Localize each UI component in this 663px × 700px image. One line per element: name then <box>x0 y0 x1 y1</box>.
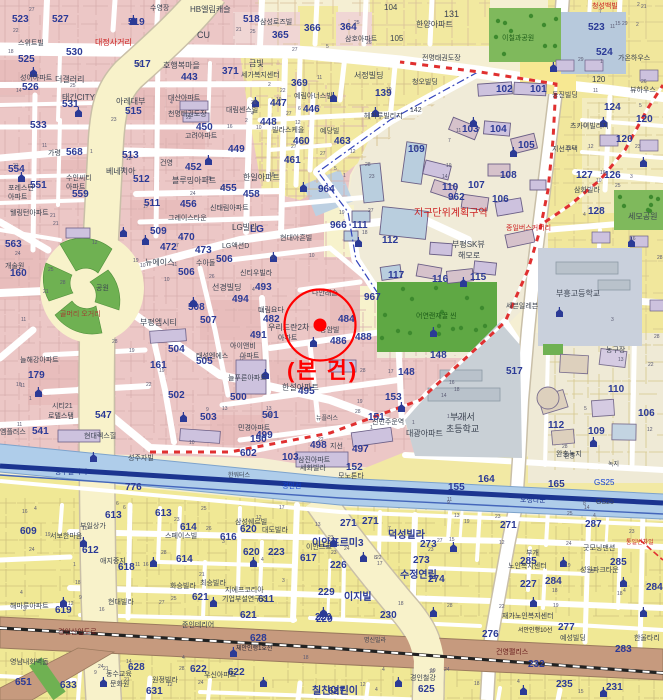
svg-text:4: 4 <box>517 679 520 685</box>
svg-text:25: 25 <box>201 506 207 512</box>
svg-text:4: 4 <box>182 655 185 661</box>
svg-text:541: 541 <box>32 426 49 437</box>
svg-text:3: 3 <box>611 317 614 323</box>
svg-text:509: 509 <box>150 226 167 237</box>
svg-text:건영: 건영 <box>160 158 173 167</box>
svg-text:23: 23 <box>629 529 635 535</box>
svg-text:519: 519 <box>128 17 145 28</box>
svg-text:18: 18 <box>398 601 404 607</box>
svg-text:신민주운역: 신민주운역 <box>372 417 404 426</box>
svg-text:28: 28 <box>355 409 361 415</box>
svg-text:11: 11 <box>42 143 47 149</box>
svg-text:23: 23 <box>635 144 641 150</box>
svg-text:22: 22 <box>146 382 152 388</box>
svg-text:10: 10 <box>82 526 88 532</box>
svg-text:4: 4 <box>593 513 596 519</box>
svg-text:공원: 공원 <box>96 283 109 292</box>
svg-text:지구단위계획구역: 지구단위계획구역 <box>414 206 488 219</box>
svg-text:2: 2 <box>245 118 248 124</box>
svg-text:22: 22 <box>280 88 286 94</box>
svg-text:23: 23 <box>369 174 375 180</box>
svg-text:287: 287 <box>585 519 602 530</box>
svg-text:17: 17 <box>377 561 383 567</box>
svg-text:태긴CITY: 태긴CITY <box>62 92 96 102</box>
svg-text:16: 16 <box>600 170 606 176</box>
svg-text:6: 6 <box>123 505 126 511</box>
svg-text:뷰하우스: 뷰하우스 <box>630 85 656 94</box>
svg-text:547: 547 <box>95 410 112 421</box>
svg-text:12: 12 <box>239 356 245 362</box>
svg-text:494: 494 <box>232 294 249 305</box>
svg-text:선경빌딩: 선경빌딩 <box>212 282 241 292</box>
svg-text:226: 226 <box>330 560 347 571</box>
svg-text:개술원: 개술원 <box>5 261 24 270</box>
svg-text:500: 500 <box>230 392 247 403</box>
svg-text:16: 16 <box>22 509 28 515</box>
svg-text:예성빌딩: 예성빌딩 <box>560 633 586 642</box>
svg-text:24: 24 <box>344 546 350 552</box>
svg-text:101: 101 <box>530 84 547 95</box>
svg-text:22: 22 <box>318 437 324 443</box>
svg-text:966: 966 <box>330 220 347 231</box>
svg-text:성원파크타운: 성원파크타운 <box>580 565 619 574</box>
svg-text:620: 620 <box>243 547 260 558</box>
svg-text:14: 14 <box>584 505 590 511</box>
svg-text:5: 5 <box>334 166 337 172</box>
svg-text:아파트: 아파트 <box>66 182 86 191</box>
svg-text:108: 108 <box>500 170 517 181</box>
svg-text:106: 106 <box>492 194 509 205</box>
svg-text:614: 614 <box>176 554 193 565</box>
svg-text:271: 271 <box>362 516 379 527</box>
svg-text:세가복지센터: 세가복지센터 <box>241 70 280 79</box>
svg-text:23: 23 <box>495 514 501 520</box>
svg-text:녹지: 녹지 <box>608 460 619 468</box>
svg-text:179: 179 <box>28 370 45 381</box>
svg-text:13: 13 <box>266 406 272 412</box>
svg-text:3: 3 <box>23 607 26 613</box>
svg-text:518: 518 <box>243 14 260 25</box>
svg-text:서보한마음: 서보한마음 <box>50 531 83 540</box>
svg-text:26: 26 <box>641 79 647 85</box>
svg-text:271: 271 <box>340 518 357 529</box>
svg-text:568: 568 <box>66 147 83 158</box>
svg-text:18: 18 <box>8 49 14 55</box>
svg-text:458: 458 <box>243 189 260 200</box>
svg-text:484: 484 <box>338 314 355 325</box>
svg-text:473: 473 <box>195 245 212 256</box>
svg-text:15: 15 <box>615 21 621 27</box>
svg-text:화승빌라: 화승빌라 <box>170 581 196 590</box>
svg-text:늘해강아파트: 늘해강아파트 <box>20 355 59 364</box>
svg-text:현대아흔빌: 현대아흔빌 <box>280 233 312 242</box>
svg-text:9: 9 <box>206 407 209 413</box>
svg-text:현대렉스힐: 현대렉스힐 <box>84 431 116 440</box>
svg-text:115: 115 <box>470 272 487 283</box>
svg-text:CU: CU <box>197 30 210 40</box>
svg-text:230: 230 <box>380 610 397 621</box>
svg-text:LG액션D: LG액션D <box>222 241 249 250</box>
svg-text:16: 16 <box>630 236 636 242</box>
svg-text:17: 17 <box>220 186 226 192</box>
svg-text:체안인행1호선: 체안인행1호선 <box>236 644 272 652</box>
svg-text:502: 502 <box>168 390 185 401</box>
svg-text:493: 493 <box>255 282 272 293</box>
svg-text:12: 12 <box>647 427 653 433</box>
svg-text:19: 19 <box>159 368 165 374</box>
svg-text:27: 27 <box>368 208 374 214</box>
svg-text:1: 1 <box>370 425 373 431</box>
svg-text:삼성쉐르빌: 삼성쉐르빌 <box>235 517 267 526</box>
svg-text:631: 631 <box>146 686 163 697</box>
svg-text:503: 503 <box>200 412 217 423</box>
svg-text:10: 10 <box>309 253 315 259</box>
svg-text:369: 369 <box>291 78 308 89</box>
svg-text:종일버스커머리: 종일버스커머리 <box>506 223 551 232</box>
svg-text:10: 10 <box>256 125 262 131</box>
svg-text:3: 3 <box>630 174 633 180</box>
svg-text:4: 4 <box>251 111 254 117</box>
svg-text:284: 284 <box>646 582 663 593</box>
svg-text:12: 12 <box>126 156 132 162</box>
svg-text:건영팰리스: 건영팰리스 <box>496 647 529 656</box>
svg-text:29: 29 <box>622 21 628 27</box>
svg-text:19: 19 <box>357 399 363 405</box>
svg-text:27: 27 <box>320 151 326 157</box>
svg-text:530: 530 <box>66 47 83 58</box>
svg-text:17: 17 <box>583 123 589 129</box>
svg-text:4: 4 <box>252 287 255 293</box>
svg-text:512: 512 <box>133 174 150 185</box>
svg-text:4: 4 <box>170 100 173 106</box>
svg-text:22: 22 <box>186 115 192 121</box>
svg-text:21: 21 <box>199 572 205 578</box>
svg-text:28: 28 <box>657 255 663 261</box>
svg-text:22: 22 <box>13 28 19 34</box>
svg-text:세화빌라: 세화빌라 <box>300 463 326 472</box>
svg-text:스페이스빌: 스페이스빌 <box>165 531 197 540</box>
svg-text:12: 12 <box>92 240 98 246</box>
svg-text:126: 126 <box>604 170 621 181</box>
svg-text:155: 155 <box>448 482 465 493</box>
svg-text:성주자빌: 성주자빌 <box>128 453 154 462</box>
svg-text:23: 23 <box>331 550 337 556</box>
svg-text:12: 12 <box>167 682 173 688</box>
svg-text:14: 14 <box>126 659 132 665</box>
svg-text:103: 103 <box>282 452 299 463</box>
svg-text:5: 5 <box>639 103 642 109</box>
svg-text:성이아파트: 성이아파트 <box>20 73 53 82</box>
svg-text:506: 506 <box>178 267 195 278</box>
svg-text:612: 612 <box>82 545 99 556</box>
svg-text:27: 27 <box>437 538 443 544</box>
svg-text:4: 4 <box>261 557 264 563</box>
svg-text:해마루아파트: 해마루아파트 <box>10 601 49 610</box>
svg-text:27: 27 <box>159 600 165 606</box>
svg-text:14: 14 <box>441 393 447 399</box>
svg-text:120: 120 <box>636 114 653 125</box>
svg-text:부평SK뷰: 부평SK뷰 <box>452 239 485 249</box>
svg-text:18: 18 <box>303 655 309 661</box>
svg-text:7: 7 <box>599 9 602 15</box>
svg-text:17: 17 <box>143 204 149 210</box>
svg-text:110: 110 <box>442 182 459 193</box>
svg-text:504: 504 <box>168 344 185 355</box>
svg-text:16: 16 <box>143 562 149 568</box>
svg-text:25: 25 <box>171 596 177 602</box>
svg-text:헤마루빌리지: 헤마루빌리지 <box>364 111 403 120</box>
svg-text:371: 371 <box>222 66 239 77</box>
svg-text:515: 515 <box>125 106 142 117</box>
svg-text:461: 461 <box>284 155 301 166</box>
svg-text:283: 283 <box>615 644 632 655</box>
svg-text:15: 15 <box>449 537 455 543</box>
svg-text:148: 148 <box>430 350 447 361</box>
svg-text:세븐일레븐: 세븐일레븐 <box>506 301 539 310</box>
svg-text:LG빌라: LG빌라 <box>232 222 258 232</box>
svg-text:12: 12 <box>68 601 74 607</box>
svg-text:원정빌라: 원정빌라 <box>152 675 178 684</box>
svg-text:스위트빌: 스위트빌 <box>18 39 44 47</box>
svg-text:523: 523 <box>588 22 605 33</box>
svg-text:103: 103 <box>462 124 479 135</box>
svg-text:5: 5 <box>271 255 274 261</box>
svg-text:이칠과공원: 이칠과공원 <box>502 33 534 42</box>
svg-text:대도빌라: 대도빌라 <box>262 525 288 534</box>
svg-text:273: 273 <box>413 555 430 566</box>
svg-text:128: 128 <box>588 206 605 217</box>
svg-text:10: 10 <box>596 178 602 184</box>
svg-text:11: 11 <box>317 75 322 81</box>
svg-text:472: 472 <box>160 242 177 253</box>
svg-text:21: 21 <box>50 213 56 219</box>
svg-text:366: 366 <box>304 23 321 34</box>
svg-text:26: 26 <box>366 40 372 46</box>
svg-text:524: 524 <box>596 47 613 58</box>
svg-text:517: 517 <box>506 366 523 377</box>
svg-text:28: 28 <box>654 334 660 340</box>
svg-text:28: 28 <box>60 280 66 286</box>
svg-text:21: 21 <box>103 666 109 672</box>
svg-text:116: 116 <box>432 274 449 285</box>
svg-text:현대빌라: 현대빌라 <box>108 597 134 606</box>
svg-text:츠카이빌리지: 츠카이빌리지 <box>570 121 609 130</box>
svg-text:463: 463 <box>334 136 351 147</box>
svg-text:민경아파트: 민경아파트 <box>238 423 271 432</box>
svg-text:신티우빌라: 신티우빌라 <box>240 268 273 277</box>
svg-text:11: 11 <box>17 422 22 428</box>
svg-text:19: 19 <box>464 519 470 525</box>
svg-text:25: 25 <box>354 20 360 26</box>
svg-text:2: 2 <box>268 82 271 88</box>
svg-text:602: 602 <box>240 448 257 459</box>
svg-text:19: 19 <box>446 163 452 169</box>
svg-text:274: 274 <box>428 574 445 585</box>
svg-text:10: 10 <box>413 145 419 151</box>
svg-text:609: 609 <box>20 526 37 537</box>
svg-text:28: 28 <box>562 444 568 450</box>
svg-text:26: 26 <box>209 274 215 280</box>
svg-text:127: 127 <box>576 170 593 181</box>
svg-text:508: 508 <box>188 302 205 313</box>
svg-text:276: 276 <box>482 629 499 640</box>
svg-text:한워터스: 한워터스 <box>228 471 251 479</box>
svg-text:24: 24 <box>444 667 450 673</box>
svg-text:563: 563 <box>5 239 22 250</box>
svg-text:이지빌: 이지빌 <box>344 590 372 603</box>
svg-text:삼진아파트: 삼진아파트 <box>298 455 331 464</box>
svg-text:533: 533 <box>30 120 47 131</box>
svg-text:18: 18 <box>474 681 480 687</box>
svg-text:삼성로즈빌: 삼성로즈빌 <box>260 17 292 26</box>
svg-text:28: 28 <box>360 368 366 374</box>
svg-text:23: 23 <box>328 535 334 541</box>
svg-text:19: 19 <box>45 532 51 538</box>
svg-text:11: 11 <box>259 308 264 314</box>
svg-text:13: 13 <box>618 357 624 363</box>
svg-text:우리드란2차: 우리드란2차 <box>268 322 310 332</box>
svg-text:4: 4 <box>375 687 378 693</box>
svg-text:102: 102 <box>496 84 513 95</box>
svg-text:13: 13 <box>315 522 321 528</box>
svg-text:28: 28 <box>112 339 118 345</box>
svg-text:포레스턴: 포레스턴 <box>8 183 34 192</box>
svg-text:(본 건): (본 건) <box>287 358 358 383</box>
svg-text:지선주택: 지선주택 <box>552 144 578 153</box>
svg-text:106: 106 <box>638 408 655 419</box>
svg-text:금빛: 금빛 <box>249 58 264 68</box>
svg-text:대정사거리: 대정사거리 <box>95 37 132 47</box>
svg-text:13: 13 <box>222 406 228 412</box>
svg-text:506: 506 <box>216 254 233 265</box>
svg-text:614: 614 <box>180 522 197 533</box>
svg-text:청오빌딩: 청오빌딩 <box>412 77 438 86</box>
svg-text:명신빌라: 명신빌라 <box>364 636 387 644</box>
svg-text:경인선: 경인선 <box>282 481 301 490</box>
svg-text:부개: 부개 <box>526 548 539 557</box>
svg-text:12: 12 <box>350 149 356 155</box>
svg-text:24: 24 <box>198 680 204 686</box>
svg-text:526: 526 <box>22 82 39 93</box>
svg-text:수영장: 수영장 <box>150 3 170 12</box>
svg-text:재가노인복지센터: 재가노인복지센터 <box>502 611 554 620</box>
svg-text:한울타리: 한울타리 <box>634 633 660 642</box>
svg-text:25: 25 <box>589 569 595 575</box>
svg-text:영남내화벽돌: 영남내화벽돌 <box>10 657 49 666</box>
svg-text:12: 12 <box>360 682 366 688</box>
svg-text:5: 5 <box>584 406 587 412</box>
svg-text:세모공원: 세모공원 <box>628 212 657 221</box>
svg-text:497: 497 <box>352 444 369 455</box>
svg-text:우신아파트: 우신아파트 <box>204 670 237 679</box>
svg-text:962: 962 <box>448 192 465 203</box>
svg-text:3: 3 <box>222 539 225 545</box>
svg-text:4: 4 <box>20 590 23 596</box>
svg-text:527: 527 <box>52 14 69 25</box>
svg-text:229: 229 <box>315 612 332 623</box>
svg-text:277: 277 <box>558 622 575 633</box>
svg-text:27: 27 <box>29 7 35 13</box>
svg-text:23: 23 <box>428 547 434 553</box>
svg-text:부평엠시티: 부평엠시티 <box>140 317 177 327</box>
svg-text:18: 18 <box>75 580 81 586</box>
svg-text:25: 25 <box>567 511 573 517</box>
svg-text:7: 7 <box>388 526 391 532</box>
svg-text:28: 28 <box>447 603 453 609</box>
svg-text:24: 24 <box>190 191 196 197</box>
svg-text:227: 227 <box>520 579 537 590</box>
svg-text:삼호아파트: 삼호아파트 <box>345 34 378 43</box>
svg-text:10: 10 <box>164 277 170 283</box>
svg-text:11: 11 <box>135 562 140 568</box>
svg-text:7: 7 <box>448 138 451 144</box>
svg-text:골머리 오거리: 골머리 오거리 <box>60 309 101 318</box>
svg-text:한양아파트: 한양아파트 <box>416 19 453 29</box>
svg-text:625: 625 <box>418 684 435 695</box>
svg-text:12: 12 <box>588 144 594 150</box>
svg-text:28: 28 <box>365 162 371 168</box>
svg-text:446: 446 <box>303 104 320 115</box>
svg-text:아파트: 아파트 <box>8 192 28 201</box>
svg-text:470: 470 <box>178 232 195 243</box>
svg-text:486: 486 <box>330 336 347 347</box>
svg-text:신태림아파트: 신태림아파트 <box>210 203 249 212</box>
svg-text:11: 11 <box>172 262 177 268</box>
svg-text:15: 15 <box>578 689 584 695</box>
svg-text:142: 142 <box>410 107 422 114</box>
svg-text:120: 120 <box>592 75 606 84</box>
svg-text:17: 17 <box>388 369 394 375</box>
svg-text:28: 28 <box>161 550 167 556</box>
svg-text:229: 229 <box>318 587 335 598</box>
svg-text:아이앤비: 아이앤비 <box>230 341 256 350</box>
svg-text:152: 152 <box>346 462 363 473</box>
svg-text:28: 28 <box>206 176 212 182</box>
svg-text:17: 17 <box>279 505 285 511</box>
svg-text:16: 16 <box>449 380 455 386</box>
svg-text:14: 14 <box>16 88 22 94</box>
svg-text:651: 651 <box>15 677 32 688</box>
svg-text:21: 21 <box>124 677 130 683</box>
svg-text:19: 19 <box>565 563 571 569</box>
svg-text:12: 12 <box>295 120 301 126</box>
svg-text:청성백빌: 청성백빌 <box>592 1 618 10</box>
svg-text:456: 456 <box>180 199 197 210</box>
svg-text:수아돌: 수아돌 <box>196 258 216 267</box>
svg-text:284: 284 <box>545 576 562 587</box>
svg-text:태성엔에스: 태성엔에스 <box>196 351 229 360</box>
svg-text:967: 967 <box>364 292 381 303</box>
svg-text:164: 164 <box>478 474 495 485</box>
svg-text:GS25: GS25 <box>596 499 614 506</box>
svg-text:22: 22 <box>376 555 382 561</box>
svg-text:농구장: 농구장 <box>606 345 626 354</box>
svg-text:준인테리어: 준인테리어 <box>182 620 214 629</box>
svg-text:23: 23 <box>111 117 117 123</box>
svg-text:29: 29 <box>578 57 584 63</box>
svg-text:27: 27 <box>286 111 292 117</box>
svg-text:628: 628 <box>250 633 267 644</box>
svg-text:고려아파트: 고려아파트 <box>185 131 218 140</box>
svg-text:24: 24 <box>98 664 104 670</box>
svg-text:10: 10 <box>429 669 435 675</box>
svg-text:9: 9 <box>94 670 97 676</box>
svg-text:5: 5 <box>331 691 334 697</box>
svg-text:4: 4 <box>382 667 385 673</box>
svg-text:옘플러스: 옘플러스 <box>0 427 26 436</box>
svg-text:웰링턴아파트: 웰링턴아파트 <box>10 208 49 217</box>
svg-text:19: 19 <box>129 348 135 354</box>
